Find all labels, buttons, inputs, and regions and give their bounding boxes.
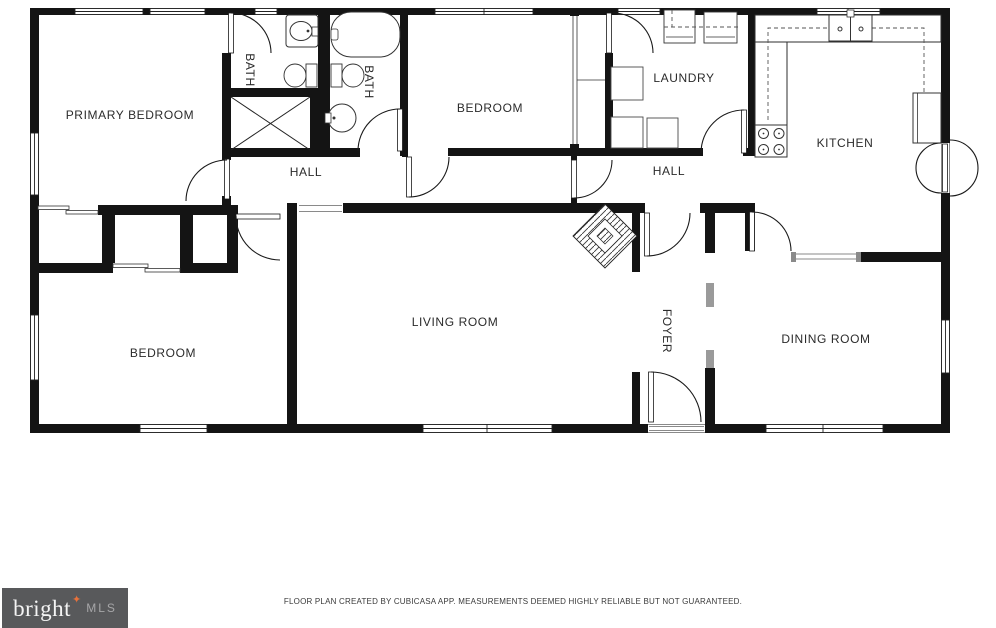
bath2-toilet: [331, 64, 364, 87]
wall-dining-north: [860, 252, 941, 262]
fixtures: [38, 10, 941, 272]
wall-living-west: [287, 203, 297, 424]
door-bath1: [229, 13, 272, 53]
wall-dining-west-upper: [705, 213, 715, 253]
wall-foyer-west-upper: [632, 213, 640, 272]
label-kitchen: KITCHEN: [817, 136, 874, 150]
wall-closet2-south: [577, 148, 613, 156]
window-bottom-bedroom: [140, 425, 207, 433]
sliding-doors-bedroom-closet: [113, 264, 180, 272]
door-bedroom-bottom: [236, 214, 280, 260]
window-top-1: [75, 9, 143, 15]
label-hall-right: HALL: [653, 164, 685, 178]
kitchen-sink: [829, 10, 872, 41]
label-bedroom-top: BEDROOM: [457, 101, 523, 115]
wall-bath-divider: [318, 15, 330, 90]
marker-foyer-east-1: [706, 283, 714, 307]
label-bedroom-bottom: BEDROOM: [130, 346, 196, 360]
front-door-opening: [648, 425, 705, 433]
wall-bath2-south-a: [330, 148, 360, 157]
wall-closet-south: [222, 148, 330, 157]
label-bath-1: BATH: [243, 53, 257, 87]
wall-foyer-north: [700, 203, 755, 213]
door-laundry-exit: [701, 110, 747, 153]
kitchen-stove: [755, 125, 787, 157]
window-bottom-living: [423, 425, 552, 433]
window-left-primary: [31, 133, 39, 195]
window-top-laundry: [618, 9, 660, 15]
primary-closet-x: [231, 97, 310, 150]
floorplan-svg: PRIMARY BEDROOM BATH BATH BEDROOM LAUNDR…: [0, 0, 996, 628]
door-kitchen-exterior: [916, 140, 978, 196]
wall-primary-east-upper: [222, 53, 231, 160]
window-top-bedroom: [435, 9, 533, 15]
laundry-dryer: [704, 12, 737, 43]
label-bath-2: BATH: [362, 65, 376, 99]
fireplace: [573, 204, 637, 268]
wall-bedroom-south: [448, 148, 577, 156]
door-dining-northwest: [750, 212, 792, 251]
label-dining-room: DINING ROOM: [781, 332, 870, 346]
door-primary-bedroom: [186, 159, 230, 201]
marker-foyer-east-2: [706, 350, 714, 368]
wall-closetrow-div2: [180, 215, 193, 263]
label-living-room: LIVING ROOM: [412, 315, 499, 329]
bath1-toilet: [284, 64, 317, 87]
label-primary-bedroom: PRIMARY BEDROOM: [66, 108, 195, 122]
door-hall-divider: [572, 160, 613, 198]
label-laundry: LAUNDRY: [653, 71, 714, 85]
disclaimer-text: FLOOR PLAN CREATED BY CUBICASA APP. MEAS…: [30, 597, 996, 606]
door-foyer-north: [645, 213, 691, 256]
wall-hall-divider-upper: [571, 153, 577, 160]
door-front-entry: [649, 372, 702, 422]
walls: [30, 8, 950, 433]
wall-bath1-south: [222, 88, 330, 97]
windows: [31, 9, 950, 433]
window-top-bath: [255, 9, 277, 15]
wall-closetrow-south-b: [180, 263, 238, 273]
window-left-bedroom: [31, 315, 39, 380]
window-right-dining: [942, 320, 950, 373]
laundry-washer: [664, 10, 695, 43]
kitchen-fridge: [913, 93, 941, 143]
door-laundry-entry: [607, 13, 654, 53]
brightmls-logo: bright✦MLS: [2, 588, 128, 628]
wall-closetrow-south-a: [30, 263, 113, 273]
bath1-vanity-sink: [286, 15, 318, 47]
window-bottom-dining: [766, 425, 883, 433]
wall-laundry-south: [613, 148, 703, 156]
wall-primary-south: [98, 205, 238, 215]
wall-dining-west-lower: [705, 368, 715, 424]
wall-foyer-west-lower: [632, 372, 640, 424]
wall-closetrow-div1: [102, 215, 115, 263]
opening-dining-north: [791, 252, 861, 262]
label-hall-left: HALL: [290, 165, 322, 179]
wall-closet-east: [310, 97, 330, 154]
door-bedroom-top: [407, 157, 450, 197]
window-top-2: [150, 9, 205, 15]
floorplan-canvas: PRIMARY BEDROOM BATH BATH BEDROOM LAUNDR…: [0, 0, 996, 628]
opening-hall-living: [299, 206, 342, 212]
sliding-doors-primary-closet: [38, 206, 98, 214]
bath2-bathtub: [331, 12, 400, 57]
bedroom-closet: [570, 12, 605, 148]
wall-laundry-east: [748, 13, 755, 148]
label-foyer: FOYER: [660, 309, 674, 353]
door-bath2: [358, 109, 403, 151]
